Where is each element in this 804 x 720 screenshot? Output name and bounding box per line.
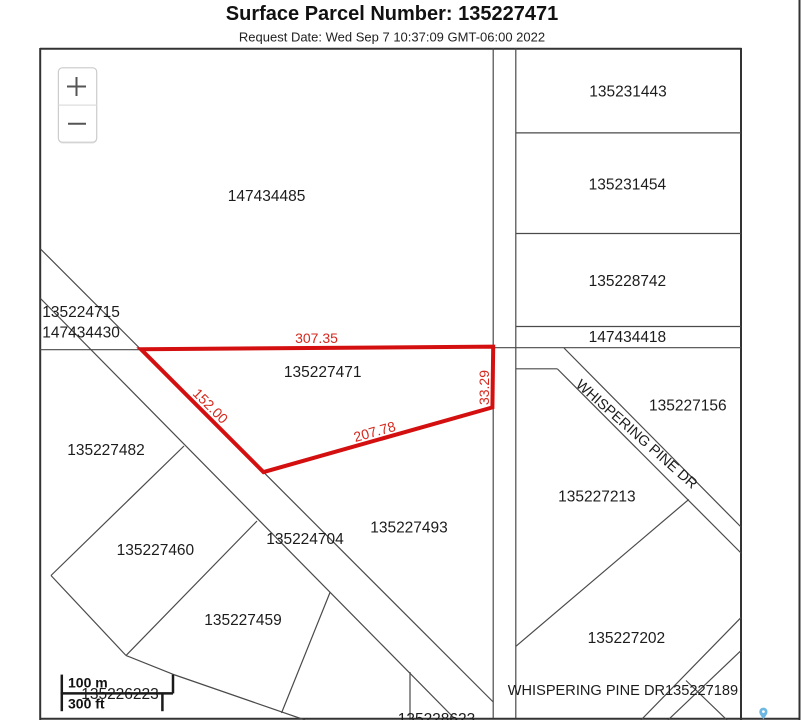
svg-text:135227156: 135227156 (649, 398, 727, 415)
svg-text:135227482: 135227482 (67, 442, 145, 459)
svg-text:33.29: 33.29 (476, 370, 492, 405)
svg-text:Surface Parcel Number: 1352274: Surface Parcel Number: 135227471 (226, 3, 558, 25)
svg-text:100 m: 100 m (68, 675, 108, 691)
svg-text:135224715: 135224715 (42, 304, 120, 321)
svg-text:135227460: 135227460 (117, 542, 195, 559)
svg-text:135227459: 135227459 (204, 612, 282, 629)
svg-text:135227493: 135227493 (370, 520, 448, 537)
svg-text:307.35: 307.35 (295, 330, 338, 346)
svg-text:135228742: 135228742 (589, 273, 667, 290)
svg-text:135227202: 135227202 (588, 630, 666, 647)
svg-text:135231443: 135231443 (589, 84, 667, 101)
svg-text:WHISPERING PINE DR135227189: WHISPERING PINE DR135227189 (508, 683, 738, 699)
svg-text:135227213: 135227213 (558, 489, 636, 506)
svg-text:135224704: 135224704 (266, 531, 344, 548)
svg-text:135228623: 135228623 (398, 711, 476, 720)
svg-text:147434418: 147434418 (589, 329, 667, 346)
svg-text:Request Date: Wed Sep 7 10:37:: Request Date: Wed Sep 7 10:37:09 GMT-06:… (239, 29, 545, 44)
svg-text:147434430: 147434430 (42, 325, 120, 342)
svg-text:147434485: 147434485 (228, 188, 306, 205)
svg-text:135231454: 135231454 (589, 177, 667, 194)
svg-text:135227471: 135227471 (284, 364, 362, 381)
svg-text:300 ft: 300 ft (68, 696, 105, 712)
